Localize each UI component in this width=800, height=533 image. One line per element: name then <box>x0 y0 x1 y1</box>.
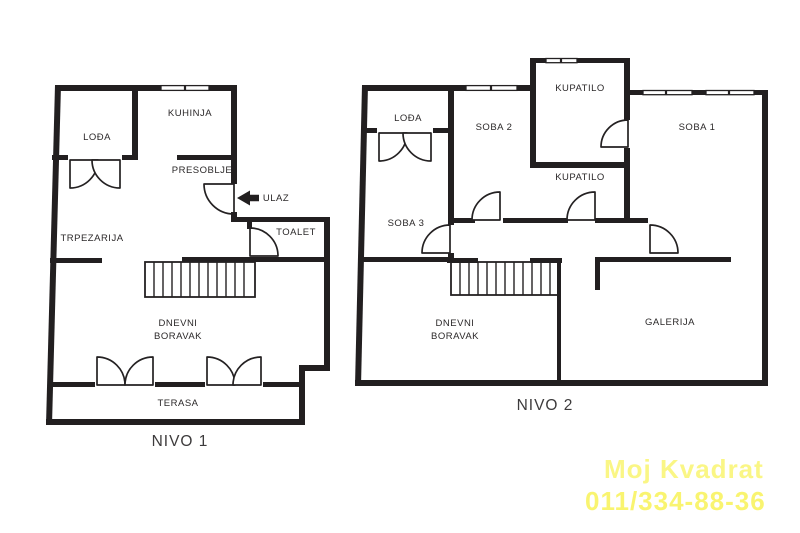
room-label-dnevni-1: DNEVNI <box>159 318 198 329</box>
room-label-lodja-1: LOĐA <box>83 132 111 143</box>
floor-plan-svg: LOĐA KUHINJA PRESOBLJE ULAZ TRPEZARIJA T… <box>0 0 800 533</box>
ulaz-arrow-icon <box>237 191 259 206</box>
wall <box>433 128 448 133</box>
room-label-dnevni-2: DNEVNI <box>436 318 475 329</box>
wall <box>355 380 768 386</box>
door-swing <box>601 120 628 147</box>
room-label-galerija: GALERIJA <box>645 317 695 328</box>
wall <box>155 382 205 387</box>
wall <box>132 90 138 160</box>
level-2-plan: LOĐA SOBA 2 KUPATILO SOBA 1 KUPATILO SOB… <box>355 58 768 414</box>
wall <box>595 218 648 223</box>
wall <box>624 58 630 120</box>
door-swing <box>567 192 595 220</box>
wall <box>530 58 546 63</box>
door-swing <box>422 225 450 253</box>
door-swing <box>233 357 261 385</box>
wall <box>692 90 706 95</box>
wall <box>48 382 95 387</box>
room-label-soba1: SOBA 1 <box>679 122 716 133</box>
wall <box>557 262 561 380</box>
wall <box>122 155 138 160</box>
wall <box>177 155 237 160</box>
entrance-door-swing <box>204 184 234 214</box>
watermark: Moj Kvadrat 011/334-88-36 <box>585 454 766 516</box>
wall <box>263 382 305 387</box>
wall <box>762 90 768 386</box>
wall <box>324 217 330 371</box>
wall <box>597 257 731 262</box>
wall <box>231 217 330 222</box>
room-label-boravak-2: BORAVAK <box>431 331 479 342</box>
wall <box>447 258 478 263</box>
wall <box>46 419 305 425</box>
wall <box>624 90 643 95</box>
level-1-title: NIVO 1 <box>152 433 209 450</box>
window <box>546 58 577 63</box>
wall <box>299 365 305 425</box>
room-label-kupatilo-top: KUPATILO <box>555 83 605 94</box>
wall <box>55 85 161 91</box>
door-swing <box>125 357 153 385</box>
level-1-plan: LOĐA KUHINJA PRESOBLJE ULAZ TRPEZARIJA T… <box>46 85 330 450</box>
railing <box>595 257 600 290</box>
stairs <box>145 262 255 297</box>
wall <box>361 128 377 133</box>
window <box>643 90 692 95</box>
wall <box>503 218 568 223</box>
room-label-ulaz: ULAZ <box>263 193 289 204</box>
floor-plan-page: LOĐA KUHINJA PRESOBLJE ULAZ TRPEZARIJA T… <box>0 0 800 533</box>
level-2-title: NIVO 2 <box>517 397 574 414</box>
wall <box>530 162 630 168</box>
room-label-kuhinja: KUHINJA <box>168 108 212 119</box>
watermark-line1: Moj Kvadrat <box>604 454 764 484</box>
wall <box>577 58 630 63</box>
door-swing <box>403 133 431 161</box>
wall <box>46 85 61 425</box>
room-label-boravak-1: BORAVAK <box>154 331 202 342</box>
room-label-soba3: SOBA 3 <box>388 218 425 229</box>
room-label-presoblje: PRESOBLJE <box>172 165 232 176</box>
door-swing <box>97 357 125 385</box>
room-label-soba2: SOBA 2 <box>476 122 513 133</box>
door-swing <box>92 160 120 188</box>
room-label-kupatilo-mid: KUPATILO <box>555 172 605 183</box>
wall <box>52 155 68 160</box>
room-label-trpezarija: TRPEZARIJA <box>60 233 123 244</box>
wall <box>50 258 102 263</box>
wall <box>624 148 630 223</box>
door-swing <box>250 228 278 256</box>
window <box>466 85 517 91</box>
door-swing <box>650 225 678 253</box>
stairs <box>451 262 560 295</box>
wall <box>530 90 536 166</box>
room-label-toalet: TOALET <box>276 227 316 238</box>
door-swing <box>472 192 500 220</box>
room-label-lodja-2: LOĐA <box>394 113 422 124</box>
room-label-terasa: TERASA <box>157 398 198 409</box>
window <box>706 90 754 95</box>
wall <box>358 257 450 262</box>
window <box>161 85 209 91</box>
wall <box>448 90 454 225</box>
watermark-line2: 011/334-88-36 <box>585 486 766 516</box>
door-swing <box>207 357 235 385</box>
